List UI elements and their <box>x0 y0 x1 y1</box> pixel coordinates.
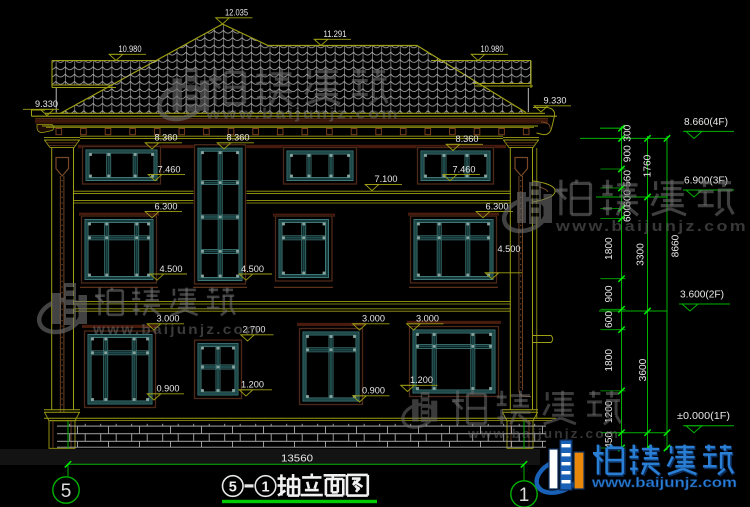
svg-text:5: 5 <box>229 480 237 496</box>
svg-text:3.000: 3.000 <box>362 314 385 325</box>
svg-text:12.035: 12.035 <box>225 8 248 19</box>
svg-text:8.660(4F): 8.660(4F) <box>684 117 728 128</box>
svg-text:8.360: 8.360 <box>227 133 250 144</box>
svg-text:8.360: 8.360 <box>155 133 178 144</box>
svg-text:www.baijunjz.com: www.baijunjz.com <box>92 322 261 337</box>
svg-text:0.900: 0.900 <box>157 384 180 395</box>
svg-text:4.500: 4.500 <box>241 264 264 275</box>
svg-text:7.460: 7.460 <box>158 164 181 175</box>
svg-text:5: 5 <box>61 481 72 502</box>
svg-text:11.291: 11.291 <box>324 29 347 40</box>
svg-text:www.baijunjz.com: www.baijunjz.com <box>467 426 620 441</box>
svg-text:600: 600 <box>604 311 615 328</box>
svg-text:3600: 3600 <box>638 358 649 381</box>
svg-text:1: 1 <box>519 485 530 506</box>
svg-text:www.baijunjz.com: www.baijunjz.com <box>205 106 400 123</box>
svg-text:1800: 1800 <box>604 349 615 372</box>
svg-text:7.460: 7.460 <box>453 164 476 175</box>
svg-text:1760: 1760 <box>643 154 654 177</box>
svg-text:www.baijunjz.com: www.baijunjz.com <box>591 475 737 490</box>
svg-text:900: 900 <box>604 285 615 302</box>
svg-text:9.330: 9.330 <box>35 99 58 110</box>
svg-text:3.000: 3.000 <box>416 314 439 325</box>
svg-text:8.360: 8.360 <box>456 134 479 145</box>
svg-text:4.500: 4.500 <box>160 264 183 275</box>
svg-text:7.100: 7.100 <box>375 174 398 185</box>
svg-text:1.200: 1.200 <box>410 375 433 386</box>
svg-text:4.500: 4.500 <box>498 244 521 255</box>
svg-text:3300: 3300 <box>636 243 647 266</box>
svg-text:±0.000(1F): ±0.000(1F) <box>677 411 730 422</box>
svg-text:1.200: 1.200 <box>241 380 264 391</box>
svg-text:3.600(2F): 3.600(2F) <box>680 290 724 301</box>
svg-text:0.900: 0.900 <box>362 386 385 397</box>
svg-text:9.330: 9.330 <box>544 96 567 107</box>
svg-text:1: 1 <box>261 480 269 496</box>
svg-text:900: 900 <box>623 145 634 162</box>
svg-text:1800: 1800 <box>604 237 615 260</box>
svg-text:10.980: 10.980 <box>119 44 142 55</box>
svg-text:www.baijunjz.com: www.baijunjz.com <box>555 218 748 235</box>
svg-text:8660: 8660 <box>671 234 682 257</box>
svg-text:6.300: 6.300 <box>155 201 178 212</box>
svg-text:300: 300 <box>623 124 634 141</box>
svg-text:10.980: 10.980 <box>481 44 504 55</box>
svg-text:13560: 13560 <box>281 454 313 465</box>
